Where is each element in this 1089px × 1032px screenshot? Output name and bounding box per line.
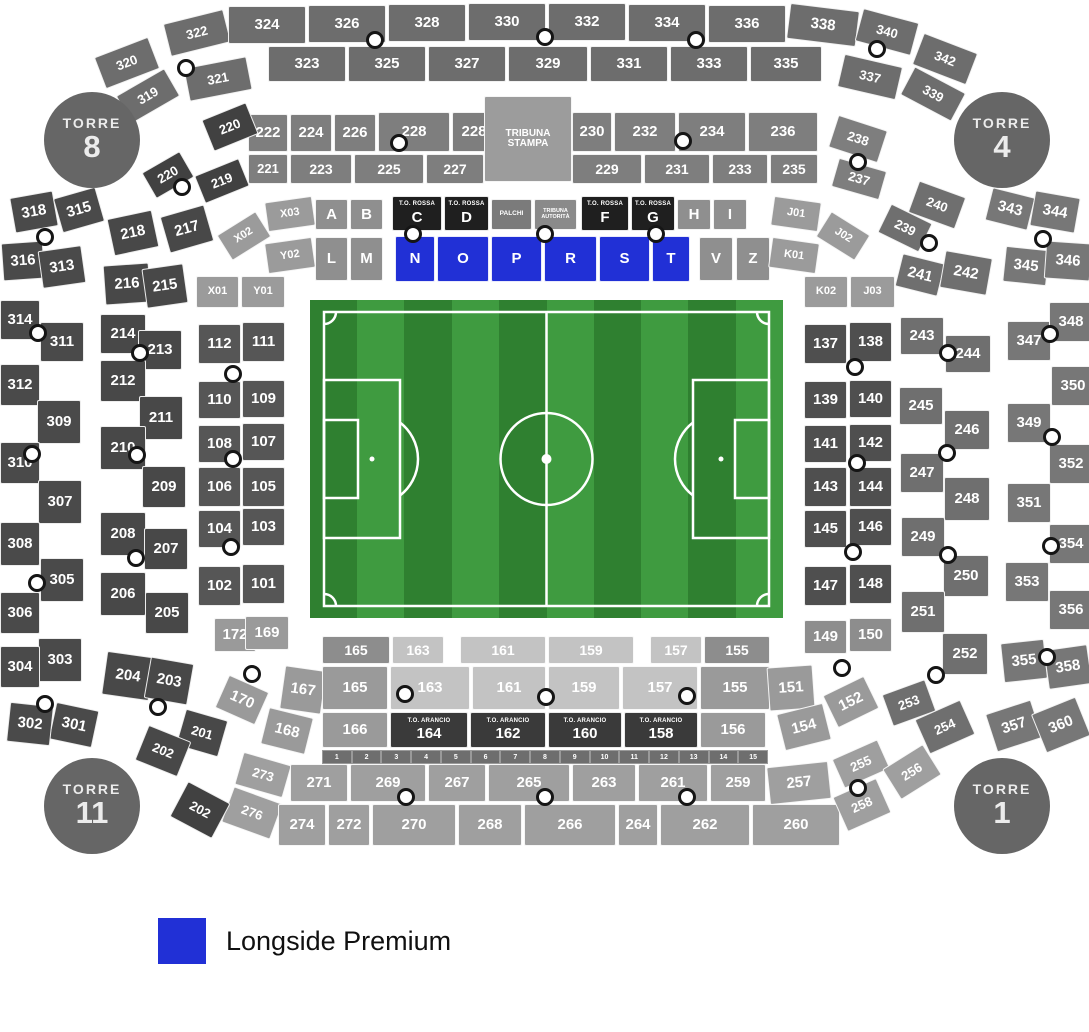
section-palchi: PALCHI (491, 199, 532, 230)
section-label: 102 (207, 578, 232, 594)
strip-number: 9 (560, 750, 590, 764)
section-label: 145 (813, 521, 838, 537)
tower-11: TORRE11 (44, 758, 140, 854)
section-label: 257 (786, 774, 813, 792)
section-label: 336 (734, 16, 759, 32)
section-k02: K02 (804, 276, 848, 308)
section-232: 232 (614, 112, 676, 152)
strip-number: 12 (649, 750, 679, 764)
section-label: 227 (443, 162, 466, 177)
section-107: 107 (242, 423, 285, 461)
section-336: 336 (708, 5, 786, 43)
gate-marker (678, 687, 696, 705)
section-label: 311 (50, 334, 74, 350)
section-label: 255 (848, 753, 873, 774)
section-label: O (457, 251, 469, 267)
section-label: 253 (896, 693, 921, 713)
section-label: 318 (20, 202, 47, 222)
section-137: 137 (804, 324, 847, 364)
section-label: 316 (10, 252, 36, 269)
section-label: 352 (1058, 456, 1083, 472)
gate-marker (1043, 428, 1061, 446)
section-o[interactable]: O (437, 236, 489, 282)
section-label: 144 (858, 479, 883, 495)
gate-marker (833, 659, 851, 677)
section-label: 103 (251, 519, 276, 535)
section-label: 313 (49, 257, 76, 276)
section-146: 146 (849, 508, 892, 546)
section-label: 243 (909, 328, 934, 344)
section-110: 110 (198, 381, 241, 419)
section-351: 351 (1007, 483, 1051, 523)
section-label: 325 (374, 56, 399, 72)
section-260: 260 (752, 804, 840, 846)
section-102: 102 (198, 566, 241, 606)
section-label: Y02 (279, 248, 300, 262)
section-323: 323 (268, 46, 346, 82)
section-label: 349 (1016, 415, 1041, 431)
section-344: 344 (1029, 190, 1081, 233)
gate-marker (848, 454, 866, 472)
section-label: 201 (190, 723, 215, 742)
section-label: 225 (377, 162, 400, 177)
section-label: 340 (875, 23, 899, 42)
section-248: 248 (944, 477, 990, 521)
gate-marker (927, 666, 945, 684)
section-206: 206 (100, 572, 146, 616)
section-label: 209 (151, 479, 176, 495)
section-tribuna-stampa: TRIBUNASTAMPA (484, 96, 572, 182)
tower-8: TORRE8 (44, 92, 140, 188)
section-label: 169 (254, 625, 279, 641)
gate-marker (127, 549, 145, 567)
gate-marker (404, 225, 422, 243)
section-k01: K01 (768, 237, 820, 274)
section-155: 155 (704, 636, 770, 664)
section-label: 350 (1060, 378, 1085, 394)
section-label: 223 (309, 162, 332, 177)
stadium-seat-map: 123456789101112131415 322324326328330332… (0, 0, 1089, 1032)
section-label: 263 (591, 775, 616, 791)
section-144: 144 (849, 467, 892, 507)
section-label: 307 (47, 494, 72, 510)
section-label: 162 (495, 726, 520, 742)
section-159: 159 (548, 636, 634, 664)
section-label: 228 (461, 124, 486, 140)
section-x01: X01 (196, 276, 239, 308)
section-352: 352 (1049, 444, 1089, 484)
section-360: 360 (1031, 697, 1089, 754)
section-label: 330 (494, 14, 519, 30)
section-305: 305 (40, 558, 84, 602)
section-label: 326 (334, 16, 359, 32)
section-266: 266 (524, 804, 616, 846)
section-152: 152 (822, 676, 879, 729)
section-label: 256 (899, 760, 925, 783)
section-label: 319 (135, 85, 161, 108)
section-label: X02 (233, 226, 256, 246)
section-label: 357 (1000, 715, 1029, 738)
section-label: 273 (251, 765, 276, 784)
gate-marker (390, 134, 408, 152)
section-label: J03 (863, 286, 881, 298)
section-109: 109 (242, 380, 285, 418)
section-j02: J02 (816, 211, 871, 261)
section-label: 139 (813, 392, 838, 408)
gate-marker (536, 28, 554, 46)
tower-number: 8 (83, 129, 100, 165)
section-267: 267 (428, 764, 486, 802)
gate-marker (397, 788, 415, 806)
section-205: 205 (145, 592, 189, 634)
gate-marker (674, 132, 692, 150)
section-label: 328 (414, 15, 439, 31)
section-101: 101 (242, 564, 285, 604)
section-label: 234 (699, 124, 724, 140)
section-150: 150 (849, 618, 892, 652)
gate-marker (224, 450, 242, 468)
section-label: 205 (154, 605, 179, 621)
section-label: 159 (571, 680, 596, 696)
section-a: A (315, 199, 348, 230)
section-label: 156 (720, 722, 745, 738)
section-j01: J01 (770, 196, 822, 232)
section-label: X01 (208, 286, 228, 298)
section-337: 337 (837, 54, 903, 101)
section-303: 303 (38, 638, 82, 682)
gate-marker (938, 444, 956, 462)
section-247: 247 (900, 453, 944, 493)
football-pitch (310, 300, 783, 618)
section-270: 270 (372, 804, 456, 846)
section-label: 158 (648, 726, 673, 742)
section-label: 264 (625, 817, 650, 833)
section-158: T.O. ARANCIO158 (624, 712, 698, 748)
section-label: S (619, 251, 629, 267)
section-label: 150 (858, 627, 883, 643)
section-161: 161 (460, 636, 546, 664)
tower-number: 4 (993, 129, 1010, 165)
section-label: 244 (955, 346, 980, 362)
section-label: 338 (810, 16, 837, 35)
section-138: 138 (849, 322, 892, 362)
section-label: 320 (114, 53, 139, 74)
section-b: B (350, 199, 383, 230)
section-259: 259 (710, 764, 766, 802)
section-340: 340 (855, 8, 920, 56)
section-112: 112 (198, 324, 241, 364)
section-215: 215 (141, 263, 188, 308)
section-label: 109 (251, 391, 276, 407)
section-label: K02 (816, 286, 836, 298)
section-label: 146 (858, 519, 883, 535)
strip-number: 11 (619, 750, 649, 764)
section-306: 306 (0, 592, 40, 634)
gate-marker (868, 40, 886, 58)
section-111: 111 (242, 322, 285, 362)
section-353: 353 (1005, 562, 1049, 602)
section-label: 249 (910, 529, 935, 545)
section-label: 346 (1055, 252, 1081, 269)
section-325: 325 (348, 46, 426, 82)
gate-marker (177, 59, 195, 77)
gate-marker (173, 178, 191, 196)
section-label: 315 (65, 199, 93, 221)
section-r[interactable]: R (544, 236, 597, 282)
section-y02: Y02 (264, 237, 316, 274)
section-label: 241 (906, 264, 934, 285)
section-label: 161 (491, 643, 514, 658)
section-label: 345 (1013, 257, 1040, 275)
section-151: 151 (767, 664, 816, 711)
section-v: V (699, 237, 733, 281)
section-235: 235 (770, 154, 818, 184)
section-label: 222 (255, 125, 280, 141)
strip-number: 10 (590, 750, 620, 764)
section-324: 324 (228, 6, 306, 44)
section-sublabel: T.O. ARANCIO (408, 718, 451, 724)
section-169: 169 (245, 616, 289, 650)
section-label: 203 (155, 671, 182, 691)
section-313: 313 (38, 245, 87, 289)
section-n[interactable]: N (395, 236, 435, 282)
gate-marker (29, 324, 47, 342)
section-label: 143 (813, 479, 838, 495)
section-l: L (315, 237, 348, 281)
section-label: 301 (60, 715, 88, 736)
strip-number: 15 (738, 750, 768, 764)
section-label: 248 (954, 491, 979, 507)
section-label: PALCHI (500, 211, 524, 218)
section-243: 243 (900, 317, 944, 355)
gate-marker (536, 225, 554, 243)
section-301: 301 (49, 702, 100, 748)
section-i: I (713, 199, 747, 230)
gate-marker (844, 543, 862, 561)
section-274: 274 (278, 804, 326, 846)
section-label: 353 (1014, 574, 1039, 590)
section-label: 337 (858, 68, 882, 86)
section-label: 309 (46, 414, 71, 430)
gate-marker (36, 228, 54, 246)
section-label: 342 (932, 49, 957, 70)
section-label: 237 (847, 169, 872, 188)
section-357: 357 (985, 700, 1043, 753)
gate-marker (149, 698, 167, 716)
strip-number: 2 (352, 750, 382, 764)
section-160: T.O. ARANCIO160 (548, 712, 622, 748)
section-sublabel: T.O. ROSSA (399, 201, 435, 207)
gate-marker (849, 153, 867, 171)
section-233: 233 (712, 154, 768, 184)
section-252: 252 (942, 633, 988, 675)
section-271: 271 (290, 764, 348, 802)
section-label: N (410, 251, 421, 267)
section-label: 240 (924, 195, 949, 215)
section-167: 167 (279, 665, 327, 714)
section-343: 343 (985, 187, 1036, 231)
section-label: 360 (1046, 713, 1075, 737)
section-label: 271 (306, 775, 331, 791)
section-label: D (461, 210, 472, 226)
section-label: 211 (149, 410, 173, 426)
section-272: 272 (328, 804, 370, 846)
section-label: C (412, 210, 423, 226)
section-225: 225 (354, 154, 424, 184)
section-label: 344 (1041, 202, 1068, 222)
tower-4: TORRE4 (954, 92, 1050, 188)
section-s[interactable]: S (599, 236, 650, 282)
section-label: 166 (342, 722, 367, 738)
section-157: 157 (650, 636, 702, 664)
section-label: 251 (910, 604, 935, 620)
section-sublabel: T.O. ARANCIO (564, 718, 607, 724)
section-label: 208 (110, 526, 135, 542)
section-161: 161 (472, 666, 546, 710)
section-307: 307 (38, 480, 82, 524)
strip-number: 13 (679, 750, 709, 764)
section-label: 274 (289, 817, 314, 833)
gate-marker (366, 31, 384, 49)
gate-marker (536, 788, 554, 806)
section-335: 335 (750, 46, 822, 82)
section-t[interactable]: T (652, 236, 690, 282)
section-label: 226 (342, 125, 367, 141)
section-327: 327 (428, 46, 506, 82)
section-label: 258 (849, 794, 874, 815)
section-332: 332 (548, 3, 626, 41)
section-249: 249 (901, 517, 945, 557)
section-label: T (666, 251, 675, 267)
section-105: 105 (242, 467, 285, 507)
section-223: 223 (290, 154, 352, 184)
section-268: 268 (458, 804, 522, 846)
section-label: 151 (778, 679, 804, 696)
section-label: L (327, 251, 336, 267)
gate-marker (920, 234, 938, 252)
strip-number: 1 (322, 750, 352, 764)
section-156: 156 (700, 712, 766, 748)
gate-marker (1038, 648, 1056, 666)
section-309: 309 (37, 400, 81, 444)
section-p[interactable]: P (491, 236, 542, 282)
section-label: 105 (251, 479, 276, 495)
section-label: AUTORITÀ (541, 215, 569, 221)
section-label: 276 (239, 803, 264, 823)
section-165: 165 (322, 636, 390, 664)
section-label: 137 (813, 336, 838, 352)
section-y01: Y01 (241, 276, 285, 308)
section-330: 330 (468, 3, 546, 41)
section-label: 229 (595, 162, 618, 177)
section-label: 308 (7, 536, 32, 552)
section-label: 107 (251, 434, 276, 450)
section-label: 215 (152, 276, 179, 295)
section-label: 112 (207, 336, 231, 352)
section-label: 157 (664, 643, 687, 658)
section-label: 347 (1016, 333, 1041, 349)
section-label: 265 (516, 775, 541, 791)
row-number-strip: 123456789101112131415 (322, 750, 768, 764)
section-label: 270 (401, 817, 426, 833)
gate-marker (28, 574, 46, 592)
section-z: Z (736, 237, 770, 281)
section-label: 304 (7, 659, 32, 675)
gate-marker (36, 695, 54, 713)
section-231: 231 (644, 154, 710, 184)
section-263: 263 (572, 764, 636, 802)
section-label: 259 (725, 775, 750, 791)
section-345: 345 (1002, 246, 1050, 286)
section-label: 217 (173, 218, 201, 240)
section-209: 209 (142, 466, 186, 508)
section-label: 356 (1058, 602, 1083, 618)
gate-marker (128, 446, 146, 464)
section-148: 148 (849, 564, 892, 604)
seat-map-canvas: 123456789101112131415 322324326328330332… (0, 0, 1089, 880)
section-label: 172 (222, 627, 247, 643)
gate-marker (1041, 325, 1059, 343)
section-label: 140 (858, 391, 883, 407)
section-x02: X02 (217, 211, 272, 261)
section-221: 221 (248, 154, 288, 184)
section-label: 355 (1011, 652, 1038, 670)
gate-marker (1042, 537, 1060, 555)
section-164: T.O. ARANCIO164 (390, 712, 468, 748)
section-label: 154 (790, 716, 818, 737)
legend-label: Longside Premium (226, 926, 451, 957)
gate-marker (396, 685, 414, 703)
section-label: 157 (647, 680, 672, 696)
section-label: 202 (150, 741, 175, 762)
section-label: 348 (1058, 314, 1083, 330)
section-label: 149 (813, 629, 838, 645)
section-label: 247 (909, 465, 934, 481)
section-label: R (565, 251, 576, 267)
section-label: 254 (932, 716, 957, 737)
section-label: 232 (632, 124, 657, 140)
section-228: 228 (378, 112, 450, 152)
section-label: 161 (496, 680, 521, 696)
section-label: 312 (7, 377, 32, 393)
section-312: 312 (0, 364, 40, 406)
section-245: 245 (899, 387, 943, 425)
strip-number: 5 (441, 750, 471, 764)
section-217: 217 (160, 204, 215, 253)
section-label: Y01 (253, 286, 273, 298)
gate-marker (939, 546, 957, 564)
section-label: K01 (783, 248, 805, 262)
section-145: 145 (804, 510, 847, 548)
section-label: 111 (252, 334, 275, 350)
strip-number: 4 (411, 750, 441, 764)
strip-number: 6 (471, 750, 501, 764)
gate-marker (131, 344, 149, 362)
gate-marker (846, 358, 864, 376)
section-label: 152 (836, 689, 865, 714)
section-264: 264 (618, 804, 658, 846)
section-label: 159 (579, 643, 602, 658)
section-label: 168 (273, 720, 301, 741)
section-label: 163 (406, 643, 429, 658)
section-label: 220 (217, 117, 242, 138)
section-338: 338 (786, 3, 860, 47)
section-label: M (360, 251, 373, 267)
section-label: G (647, 210, 659, 226)
gate-marker (939, 344, 957, 362)
section-label: 266 (557, 817, 582, 833)
legend: Longside Premium (158, 918, 451, 964)
